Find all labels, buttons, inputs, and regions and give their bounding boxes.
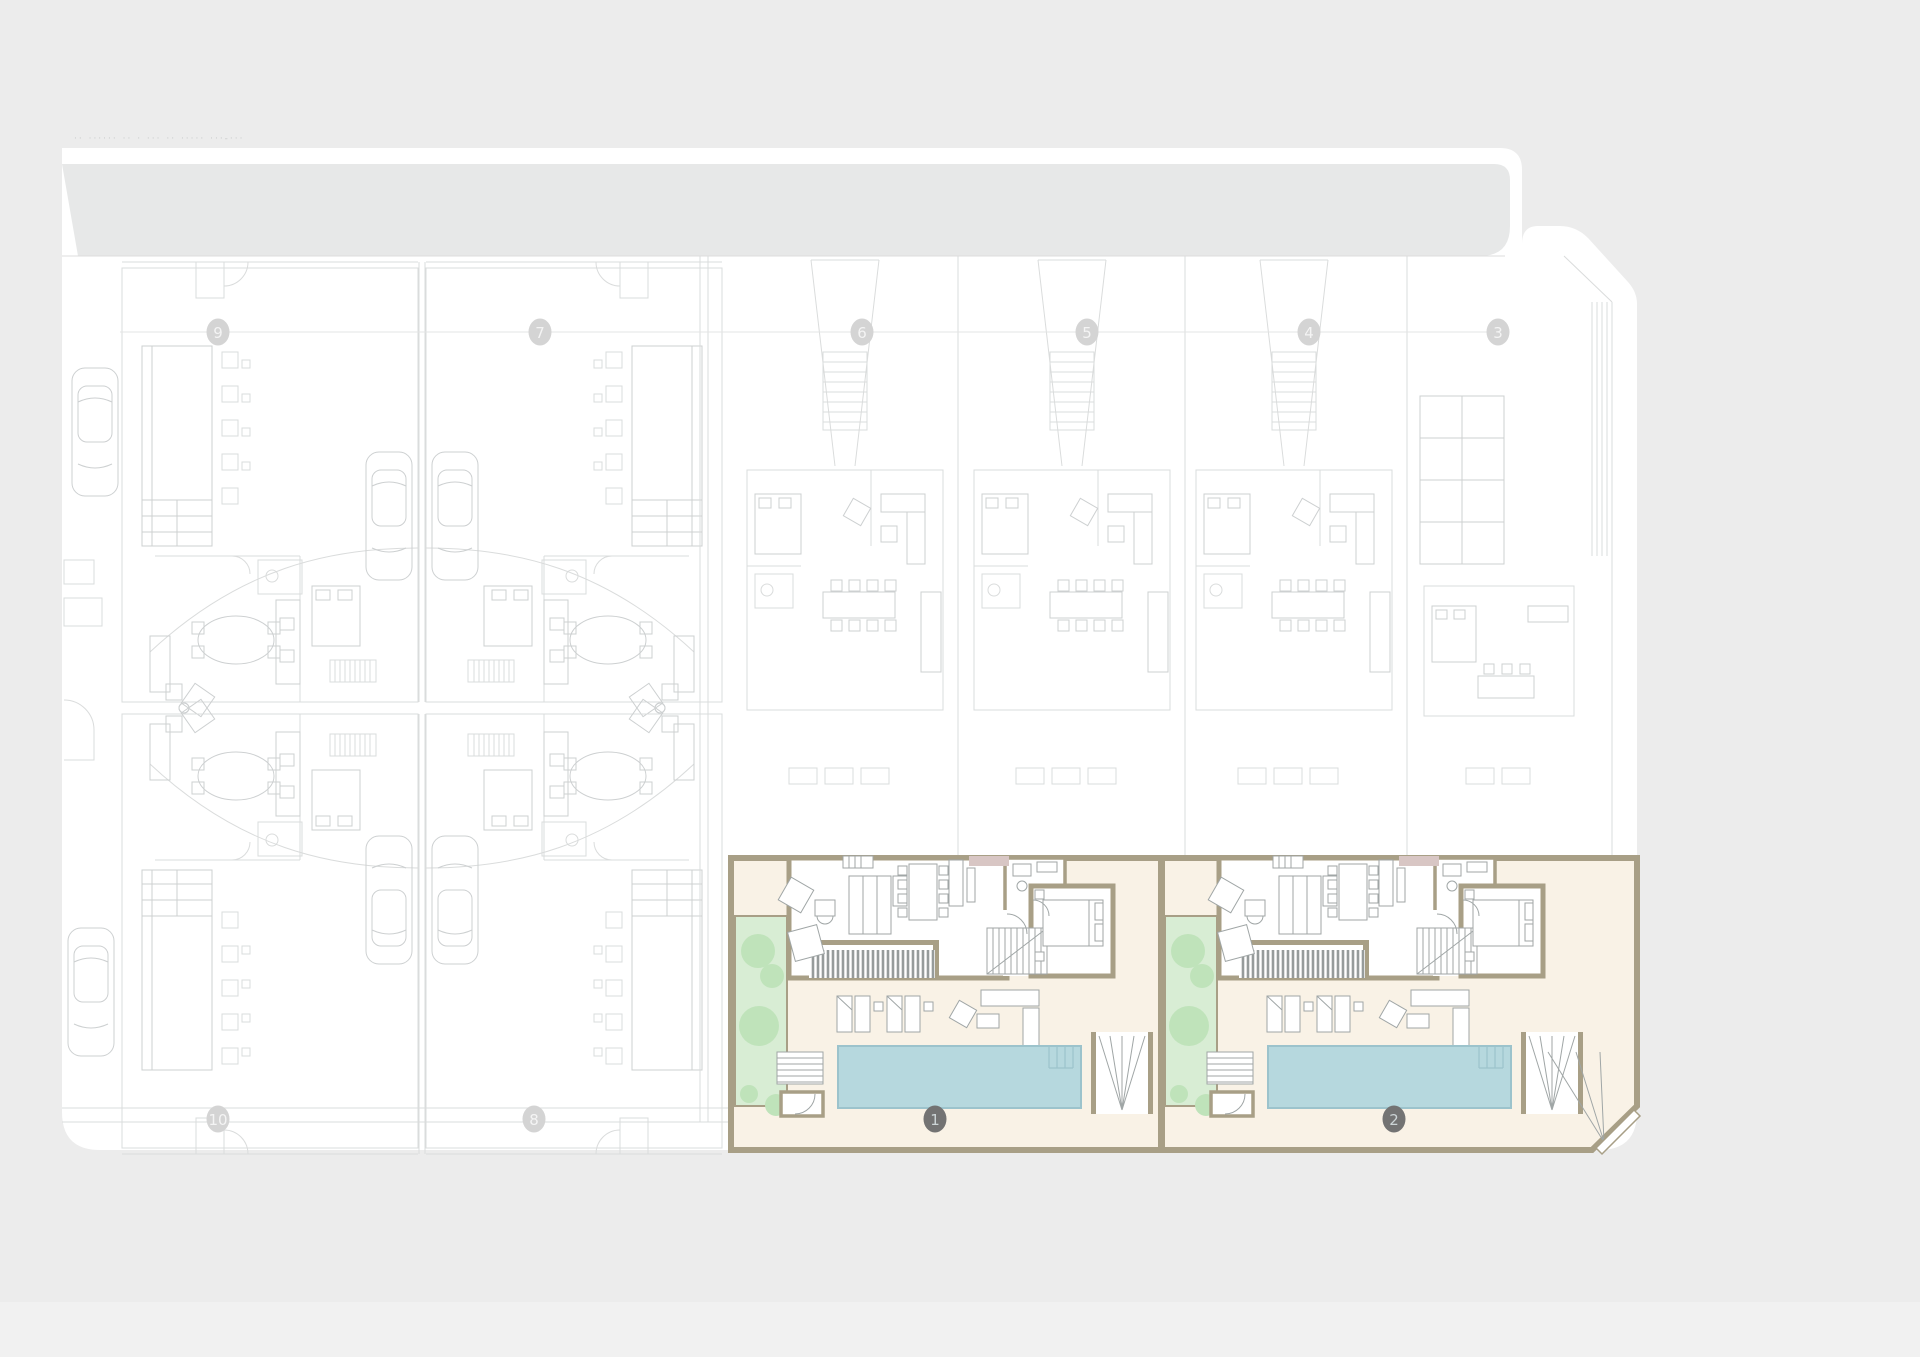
grid-bubble-4: 4 [1298, 319, 1321, 346]
grid-bubble-label: 5 [1082, 324, 1092, 342]
grid-bubble-label: 9 [213, 324, 223, 342]
floor-plan-sheet: 97654310812 ·· ······ ·· · ··· ·· ····· … [0, 0, 1920, 1357]
grid-bubble-5: 5 [1076, 319, 1099, 346]
grid-bubble-7: 7 [529, 319, 552, 346]
highlighted-villas-block [731, 856, 1640, 1154]
grid-bubble-9: 9 [207, 319, 230, 346]
grid-bubble-label: 7 [535, 324, 545, 342]
grid-bubble-1: 1 [924, 1106, 947, 1133]
grid-bubble-10: 10 [207, 1106, 230, 1133]
grid-bubble-6: 6 [851, 319, 874, 346]
grid-bubble-3: 3 [1487, 319, 1510, 346]
grid-bubble-label: 8 [529, 1111, 539, 1129]
grid-bubble-label: 3 [1493, 324, 1503, 342]
grid-bubble-label: 2 [1389, 1111, 1399, 1129]
grid-bubble-2: 2 [1383, 1106, 1406, 1133]
grid-bubble-8: 8 [523, 1106, 546, 1133]
sheet-title: ·· ······ ·· · ··· ·· ····· ···-··· [74, 134, 245, 144]
street-band [62, 164, 1510, 256]
site-plan-svg: 97654310812 [0, 0, 1920, 1357]
grid-bubble-label: 1 [930, 1111, 940, 1129]
grid-bubble-label: 4 [1304, 324, 1314, 342]
grid-bubble-label: 10 [208, 1111, 227, 1129]
grid-bubble-label: 6 [857, 324, 867, 342]
page-footer-band [0, 1302, 1920, 1357]
villa-divider-wall [1158, 858, 1165, 1150]
